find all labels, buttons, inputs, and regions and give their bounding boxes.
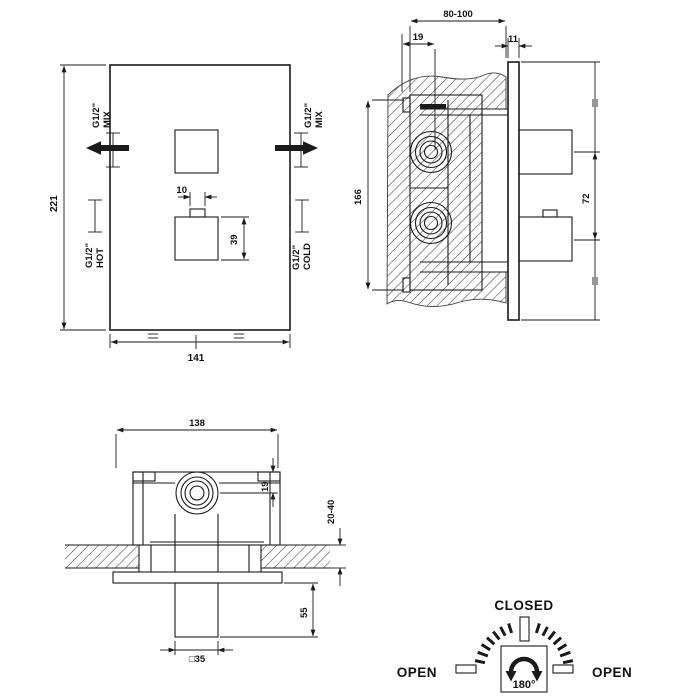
dim-width-141: 141 (110, 334, 290, 364)
top-view: 138 (65, 418, 346, 665)
front-view: 221 141 10 39 (49, 65, 325, 364)
technical-drawing-sheet: 221 141 10 39 (0, 0, 700, 700)
dial-angle-label: 180° (513, 679, 536, 691)
port-label-mix-left-size: G1/2" (91, 103, 102, 128)
box-cavity (482, 109, 509, 272)
dim-plate-11: 11 (495, 34, 532, 58)
fixing-bracket (420, 104, 446, 109)
thermostat-handle-side (519, 130, 572, 174)
dim-label-11: 11 (508, 34, 519, 45)
dim-spacing-72: 72 (521, 62, 600, 320)
safety-stop-button (543, 210, 557, 217)
dim-label-20-40: 20-40 (326, 500, 337, 524)
port-label-mix-left: MIX (102, 110, 113, 128)
trim-plate-top (113, 572, 282, 583)
port-label-hot: HOT (95, 248, 106, 268)
dial-tick-arc-right (536, 624, 573, 663)
side-section-view: 80-100 19 11 166 (353, 9, 600, 320)
dim-handle-55: 55 (220, 583, 318, 637)
dim-label-141: 141 (188, 353, 205, 364)
dim-label-55: 55 (299, 607, 310, 618)
rotation-dial-diagram: CLOSED OPEN OPEN 180° (397, 598, 633, 692)
handle-spindle (175, 583, 218, 637)
dial-position-left (456, 665, 476, 673)
dim-label-19-top: 19 (260, 481, 271, 492)
dial-closed-label: CLOSED (494, 598, 553, 613)
dial-position-right (553, 665, 573, 673)
wall-band-left (65, 545, 139, 568)
dim-label-39: 39 (229, 234, 240, 245)
dim-label-19-side: 19 (413, 32, 424, 43)
port-label-cold: COLD (302, 243, 313, 270)
port-hot: G1/2" HOT (84, 200, 106, 268)
trim-plate-front (110, 65, 290, 330)
dim-label-80-100: 80-100 (443, 9, 473, 20)
port-label-mix-right: MIX (314, 110, 325, 128)
dial-open-right-label: OPEN (592, 665, 632, 680)
wall-band-right (261, 545, 330, 568)
dim-wall-20-40: 20-40 (326, 500, 346, 586)
dim-label-72: 72 (581, 193, 592, 204)
port-cold: G1/2" COLD (291, 200, 313, 270)
valve-cartridge-topview (176, 472, 218, 514)
dial-tick-arc-left (475, 624, 512, 663)
dim-box-138: 138 (116, 418, 278, 468)
dim-label-10: 10 (176, 185, 187, 196)
volume-handle-side (519, 217, 572, 261)
dial-position-top (520, 617, 529, 641)
port-label-hot-size: G1/2" (84, 243, 95, 268)
port-label-mix-right-size: G1/2" (303, 103, 314, 128)
port-label-cold-size: G1/2" (291, 245, 302, 270)
dim-label-221: 221 (49, 195, 60, 212)
dim-label-166: 166 (353, 189, 364, 205)
dial-open-left-label: OPEN (397, 665, 437, 680)
dim-label-sq35: □35 (189, 654, 206, 665)
trim-plate-section (508, 62, 519, 320)
dim-square-35: □35 (160, 641, 233, 665)
dim-label-138: 138 (189, 418, 205, 429)
drawing-canvas: 221 141 10 39 (0, 0, 700, 700)
